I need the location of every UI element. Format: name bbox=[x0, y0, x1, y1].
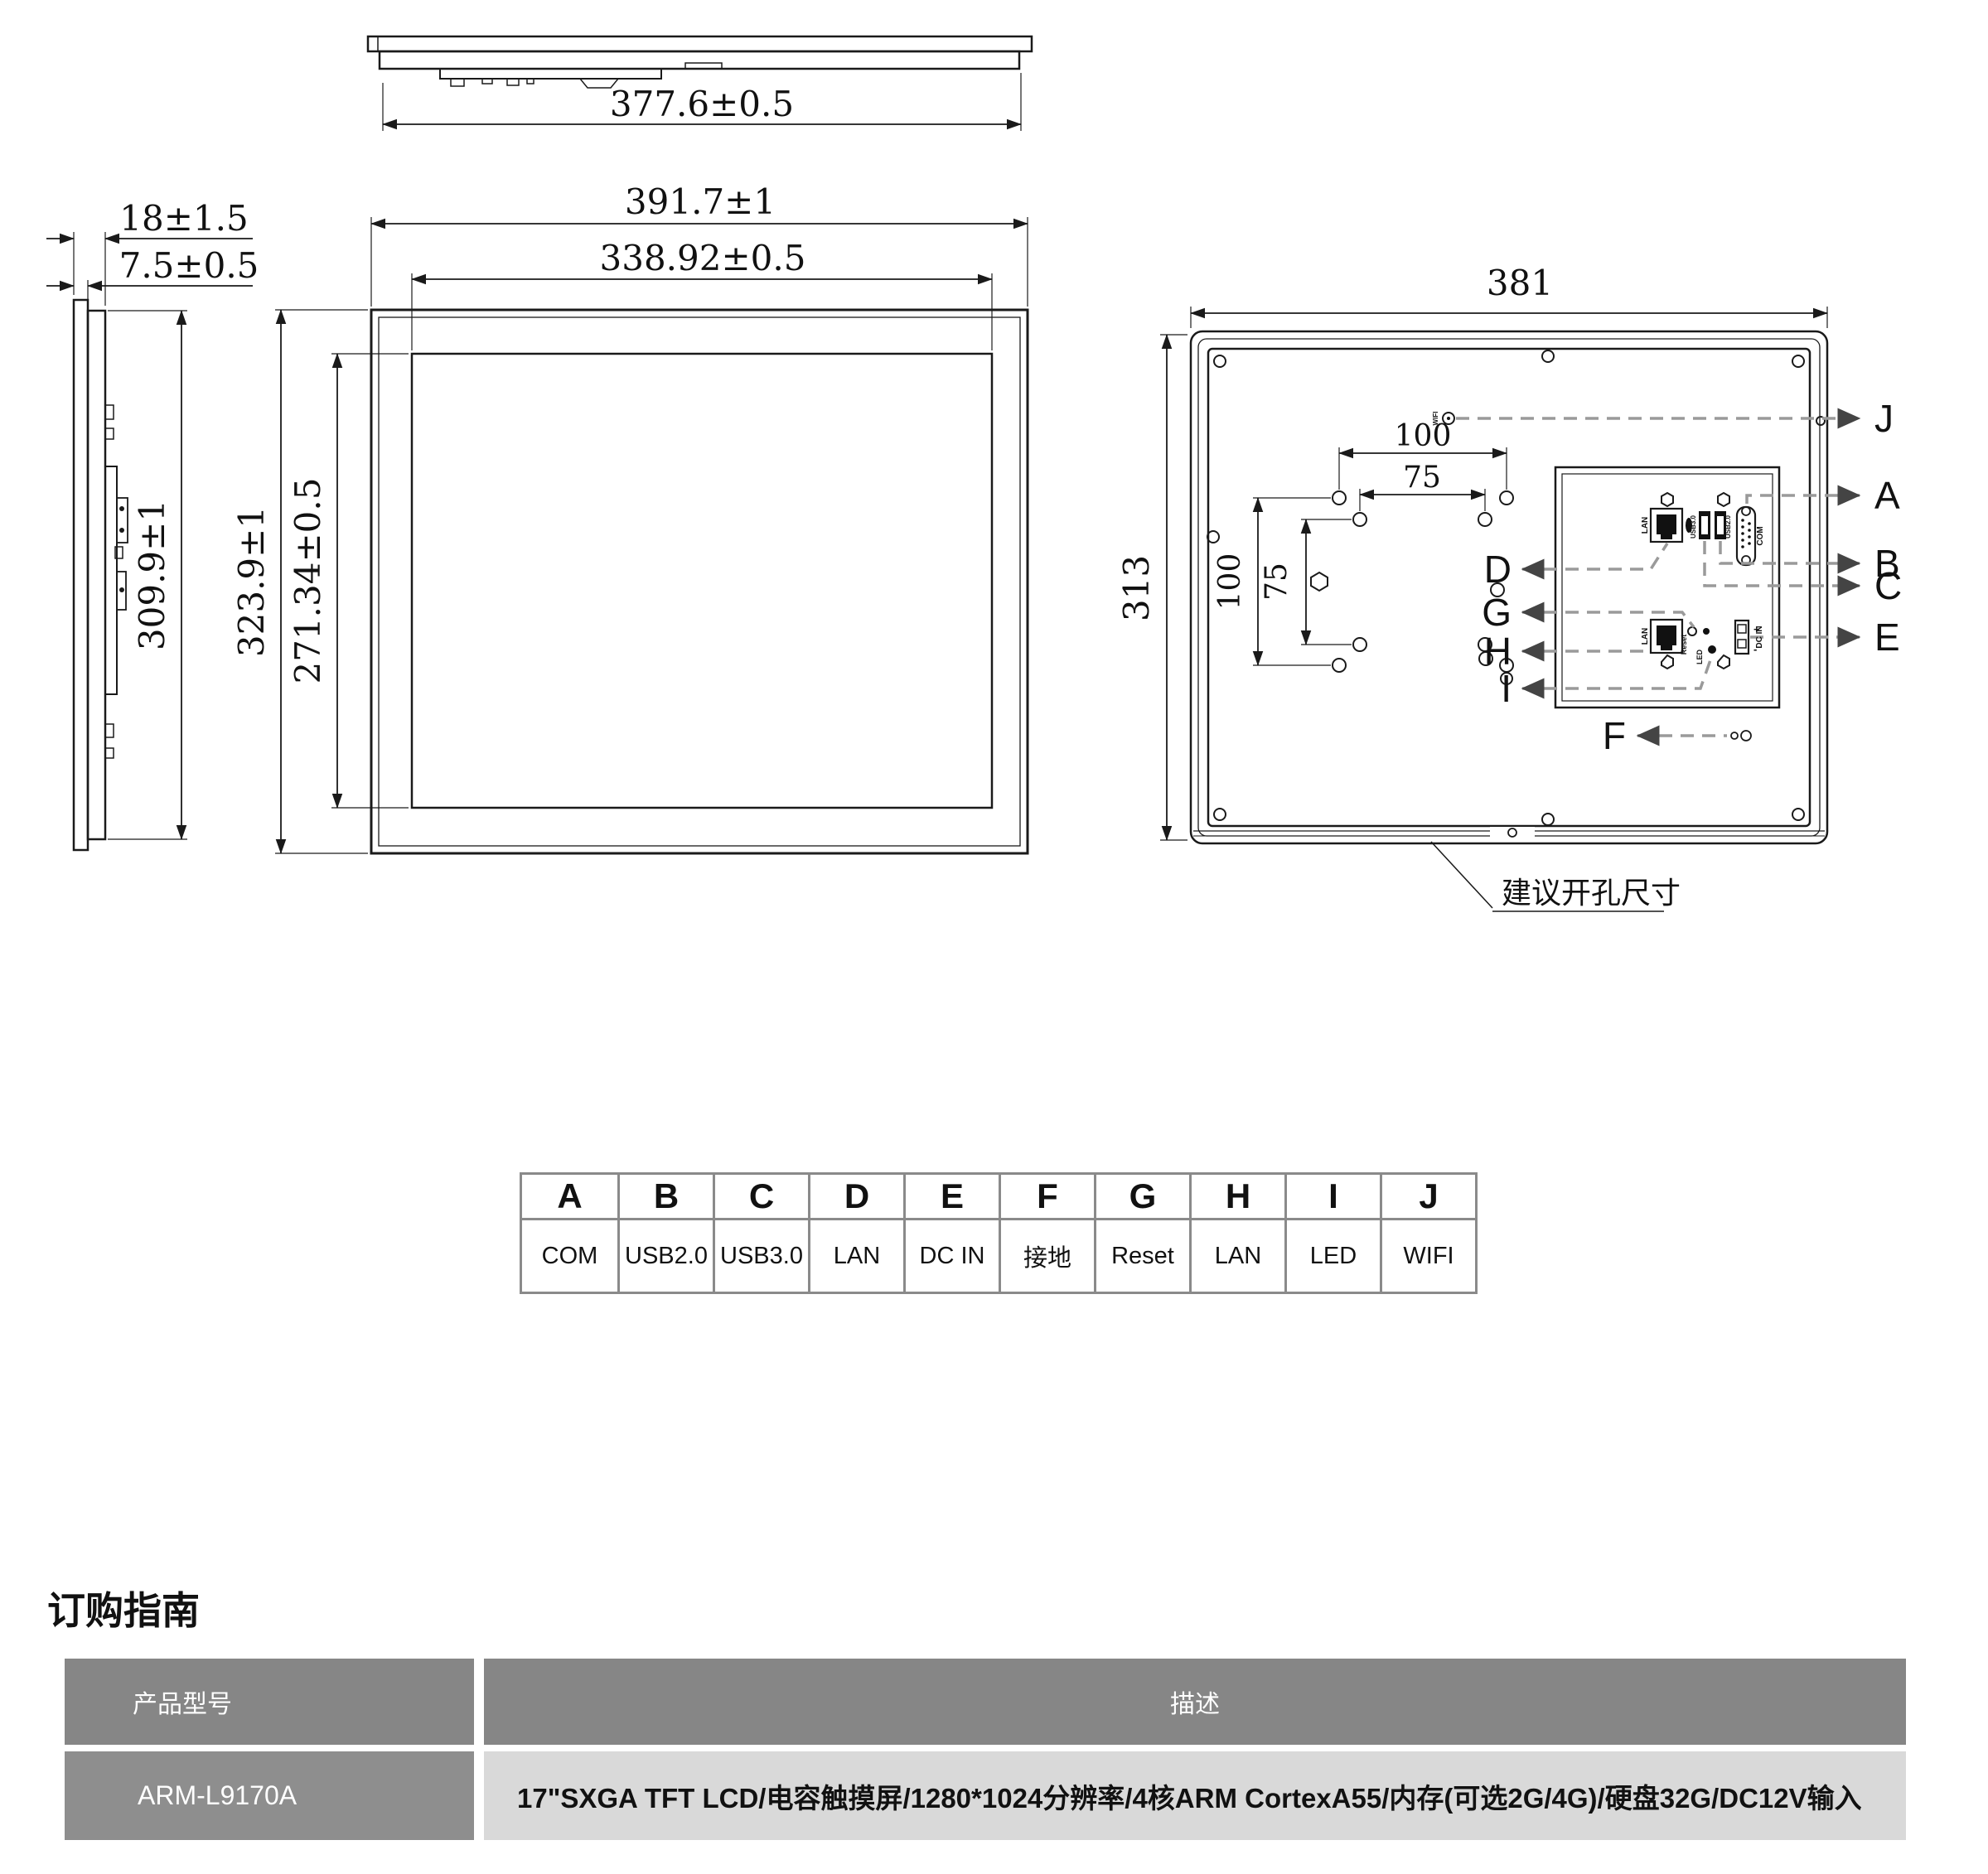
legend-value: LAN bbox=[1189, 1218, 1284, 1292]
technical-drawing: 377.6±0.5 18±1.5 7.5±0.5 309.9±1 bbox=[0, 0, 1988, 1044]
dcin-minus: - bbox=[1753, 643, 1757, 655]
legend-value: LAN bbox=[808, 1218, 903, 1292]
ground-screw bbox=[1731, 731, 1751, 741]
dim-top-width: 377.6±0.5 bbox=[610, 84, 794, 124]
legend-value: USB2.0 bbox=[617, 1218, 713, 1292]
dim-front-height: 323.9±1 bbox=[231, 506, 272, 657]
datasheet-page: 377.6±0.5 18±1.5 7.5±0.5 309.9±1 bbox=[0, 0, 1988, 1874]
legend-key: J bbox=[1380, 1175, 1475, 1218]
legend-value: USB3.0 bbox=[713, 1218, 808, 1292]
ordering-col-model: 产品型号 bbox=[65, 1659, 474, 1745]
legend-key: D bbox=[808, 1175, 903, 1218]
lan1-label: LAN bbox=[1641, 517, 1650, 534]
callout-G: G bbox=[1482, 591, 1512, 634]
front-view bbox=[275, 217, 1028, 853]
ordering-col-desc: 描述 bbox=[484, 1659, 1906, 1745]
legend-key: A bbox=[522, 1175, 617, 1218]
reset-label: Reset bbox=[1680, 635, 1688, 655]
legend-value: DC IN bbox=[903, 1218, 999, 1292]
legend-key: G bbox=[1094, 1175, 1189, 1218]
dcin-plus: + bbox=[1753, 623, 1760, 635]
cutout-note: 建议开孔尺寸 bbox=[1502, 876, 1681, 910]
legend-key: I bbox=[1284, 1175, 1380, 1218]
callout-I: I bbox=[1501, 667, 1512, 710]
dcin-port bbox=[1718, 621, 1749, 669]
callout-D: D bbox=[1484, 548, 1512, 591]
legend-value: 接地 bbox=[999, 1218, 1094, 1292]
dim-vesa-75-v: 75 bbox=[1260, 563, 1294, 601]
legend-key: C bbox=[713, 1175, 808, 1218]
dim-rear-width: 381 bbox=[1487, 263, 1553, 303]
dim-screen-width: 338.92±0.5 bbox=[600, 238, 806, 278]
legend-value: COM bbox=[522, 1218, 617, 1292]
dim-vesa-75-h: 75 bbox=[1403, 461, 1441, 495]
lan1-port bbox=[1651, 493, 1682, 542]
lan2-label: LAN bbox=[1641, 628, 1650, 645]
com-port bbox=[1737, 507, 1755, 565]
dim-side-height: 309.9±1 bbox=[132, 500, 172, 650]
callout-F: F bbox=[1603, 714, 1626, 757]
legend-value: Reset bbox=[1094, 1218, 1189, 1292]
legend-key: H bbox=[1189, 1175, 1284, 1218]
led-label: LED bbox=[1695, 649, 1704, 664]
dim-vesa-100-v: 100 bbox=[1213, 553, 1247, 611]
legend-key: B bbox=[617, 1175, 713, 1218]
reset-button bbox=[1688, 627, 1710, 635]
usb2-label: USB2.0 bbox=[1724, 514, 1732, 539]
ordering-guide-heading: 订购指南 bbox=[47, 1581, 200, 1635]
callout-J: J bbox=[1874, 397, 1894, 440]
dim-side-bezel: 7.5±0.5 bbox=[119, 245, 259, 286]
callout-E: E bbox=[1874, 616, 1900, 659]
lan2-port bbox=[1651, 620, 1682, 669]
dim-vesa-100-h: 100 bbox=[1395, 419, 1452, 453]
dim-side-thickness: 18±1.5 bbox=[119, 198, 248, 239]
ordering-desc: 17"SXGA TFT LCD/电容触摸屏/1280*1024分辨率/4核ARM… bbox=[484, 1751, 1906, 1840]
callout-A: A bbox=[1874, 474, 1900, 517]
ordering-model: ARM-L9170A bbox=[65, 1751, 474, 1840]
legend-value: LED bbox=[1284, 1218, 1380, 1292]
dim-front-width: 391.7±1 bbox=[625, 181, 776, 222]
callout-C: C bbox=[1874, 564, 1902, 607]
com-label: COM bbox=[1756, 526, 1765, 545]
port-legend-table: A B C D E F G H I J COM USB2.0 USB3.0 LA… bbox=[520, 1172, 1478, 1294]
dim-screen-height: 271.34±0.5 bbox=[288, 478, 328, 684]
wifi-label: WIFI bbox=[1432, 412, 1439, 426]
legend-key: F bbox=[999, 1175, 1094, 1218]
legend-value: WIFI bbox=[1380, 1218, 1475, 1292]
callout-leaders bbox=[1456, 418, 1860, 736]
usb3-label: USB3.0 bbox=[1690, 514, 1697, 539]
led-indicator bbox=[1708, 645, 1716, 654]
legend-key: E bbox=[903, 1175, 999, 1218]
dim-rear-height: 313 bbox=[1116, 555, 1157, 621]
